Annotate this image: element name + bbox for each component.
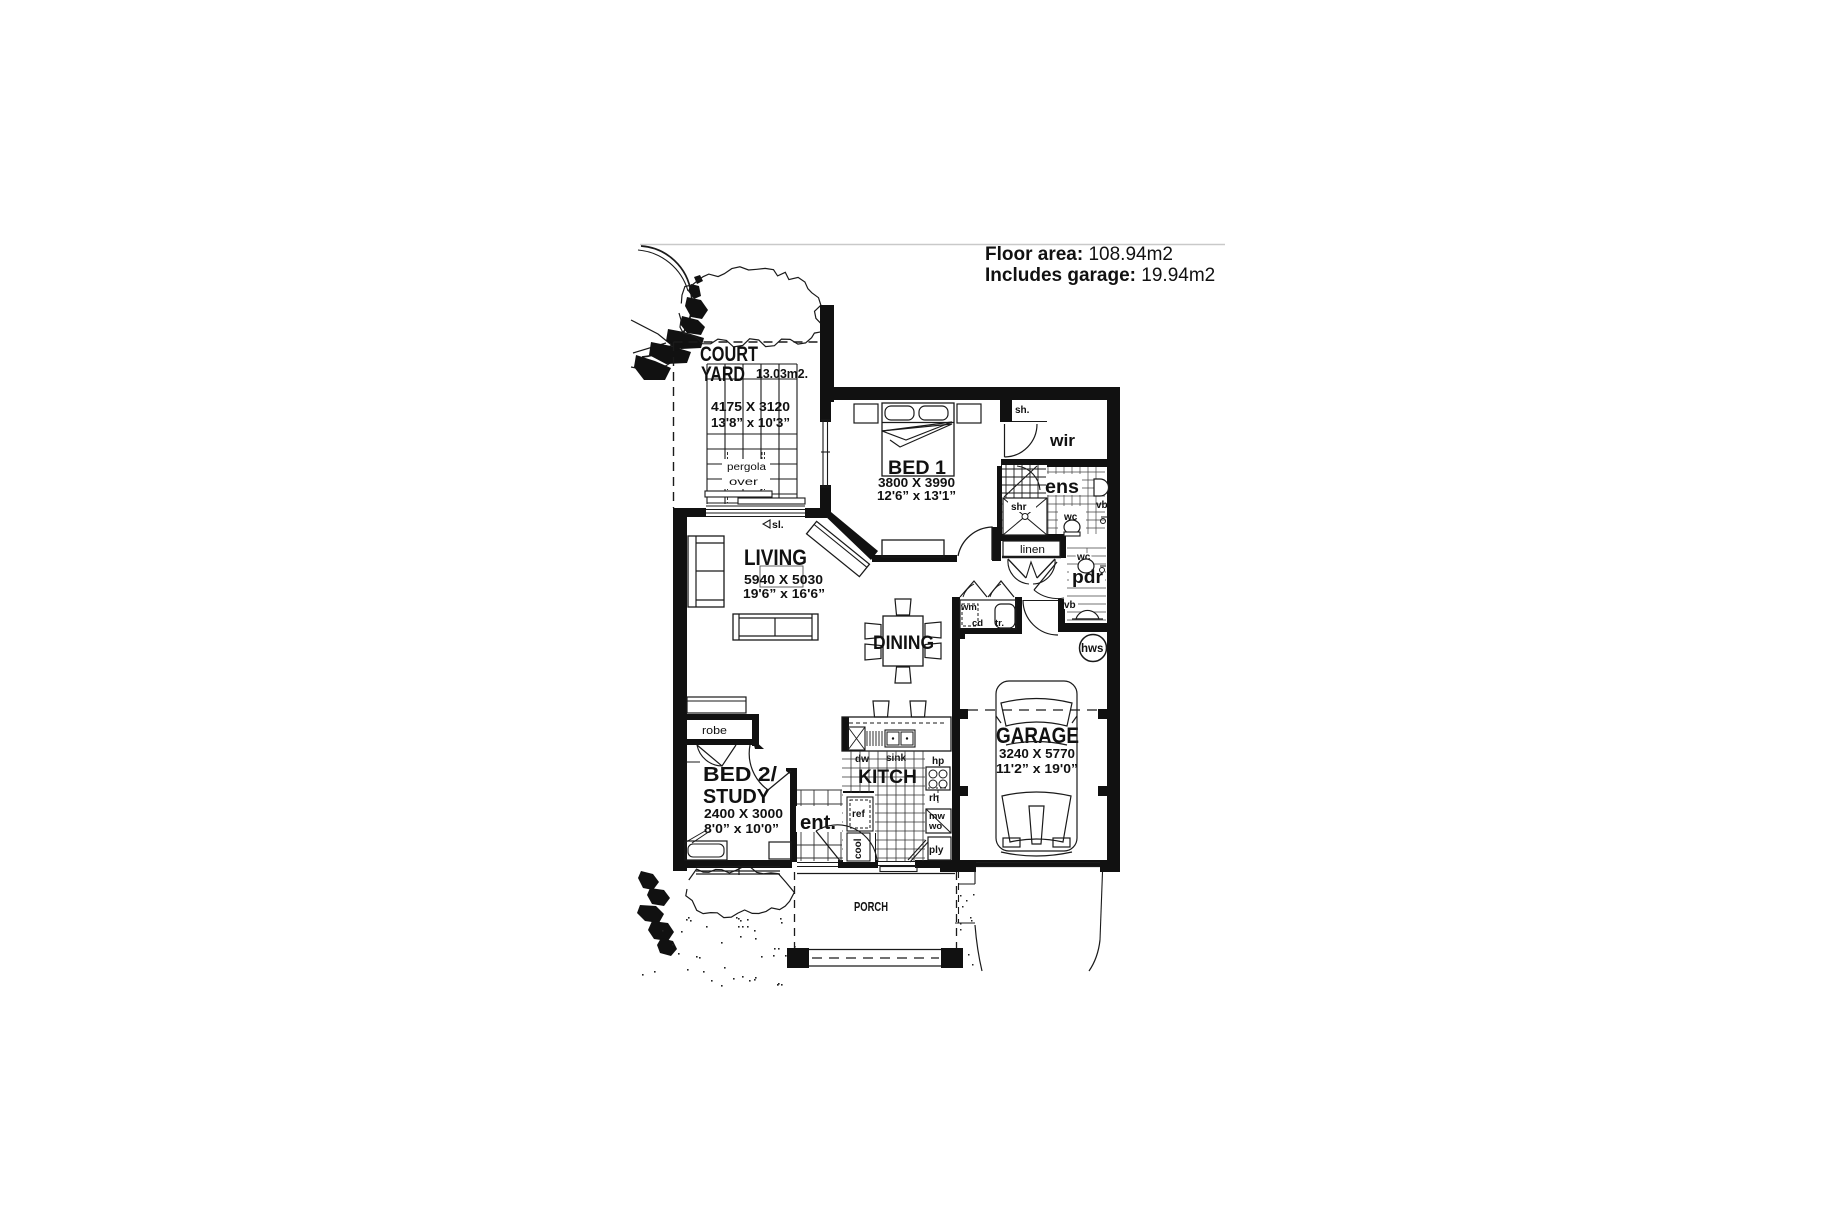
svg-text:13.03m2.: 13.03m2. bbox=[756, 367, 808, 381]
svg-text:hp: hp bbox=[932, 756, 944, 767]
svg-text:vb: vb bbox=[1064, 600, 1076, 611]
svg-text:wo: wo bbox=[928, 821, 942, 832]
svg-text:4175 X 3120: 4175 X 3120 bbox=[711, 400, 790, 414]
svg-text:ref: ref bbox=[852, 809, 865, 820]
svg-text:11'2” x 19'0”: 11'2” x 19'0” bbox=[996, 762, 1078, 776]
svg-text:Floor area: 108.94m2: Floor area: 108.94m2 bbox=[985, 244, 1173, 265]
svg-text:5940 X 5030: 5940 X 5030 bbox=[744, 573, 823, 587]
svg-text:shr: shr bbox=[1011, 502, 1027, 513]
svg-text:cool: cool bbox=[853, 838, 864, 859]
svg-text:sl.: sl. bbox=[772, 519, 784, 531]
svg-text:STUDY: STUDY bbox=[703, 786, 771, 808]
svg-text:Includes garage: 19.94m2: Includes garage: 19.94m2 bbox=[985, 265, 1215, 286]
svg-text:dw: dw bbox=[855, 754, 869, 765]
svg-text:13'8” x 10'3”: 13'8” x 10'3” bbox=[711, 416, 790, 430]
svg-text:KITCH: KITCH bbox=[858, 767, 917, 788]
svg-text:wir: wir bbox=[1049, 431, 1075, 450]
svg-text:hws: hws bbox=[1081, 643, 1103, 655]
svg-text:LIVING: LIVING bbox=[744, 545, 807, 570]
svg-text:sh.: sh. bbox=[1015, 405, 1030, 416]
svg-text:ply: ply bbox=[929, 845, 944, 856]
svg-text:linen: linen bbox=[1020, 544, 1045, 556]
svg-text:BED 2/: BED 2/ bbox=[703, 764, 778, 786]
svg-text:12'6” x 13'1”: 12'6” x 13'1” bbox=[877, 489, 956, 503]
svg-text:2400 X 3000: 2400 X 3000 bbox=[704, 807, 783, 821]
svg-text:vb: vb bbox=[1096, 500, 1108, 511]
svg-text:3240 X 5770: 3240 X 5770 bbox=[999, 747, 1075, 761]
svg-text:YARD: YARD bbox=[701, 363, 745, 386]
svg-text:rh: rh bbox=[929, 793, 939, 804]
svg-text:pdr: pdr bbox=[1072, 567, 1103, 587]
svg-text:3800 X 3990: 3800 X 3990 bbox=[878, 476, 955, 490]
svg-text:8'0” x 10'0”: 8'0” x 10'0” bbox=[704, 822, 779, 836]
svg-text:over: over bbox=[729, 477, 759, 488]
svg-text:pergola: pergola bbox=[727, 462, 767, 473]
svg-text:ent.: ent. bbox=[800, 812, 836, 834]
svg-text:tr.: tr. bbox=[995, 618, 1004, 629]
svg-text:ens: ens bbox=[1045, 477, 1079, 498]
svg-text:PORCH: PORCH bbox=[854, 899, 888, 914]
svg-text:DINING: DINING bbox=[873, 633, 934, 654]
svg-text:19'6” x 16'6”: 19'6” x 16'6” bbox=[743, 587, 825, 601]
svg-text:robe: robe bbox=[702, 725, 727, 737]
